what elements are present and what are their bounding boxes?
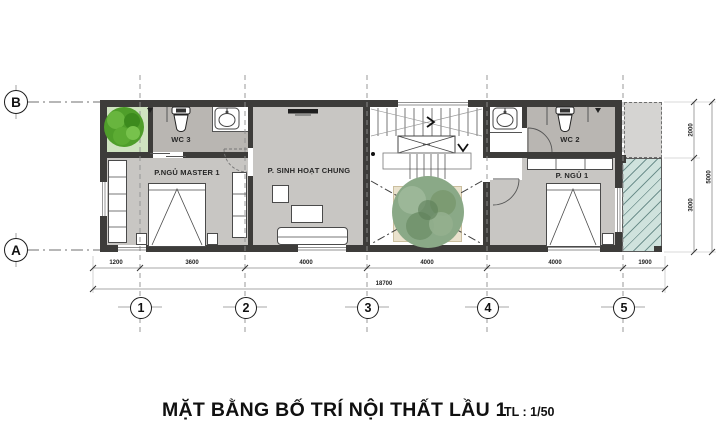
wall-corridor-wc2 [522, 107, 527, 128]
living-sofa [277, 227, 348, 245]
living-coffee-table [291, 205, 323, 223]
axis-bubble-A: A [4, 238, 28, 262]
room-label-master-bedroom: P.NGỦ MASTER 1 [137, 168, 237, 177]
opening-landing-corridor [483, 158, 490, 182]
wc2-basin-niche [490, 107, 522, 133]
wall-balcony-nub-bottom [654, 246, 662, 252]
wall-balcony-nub-top [615, 155, 626, 163]
living-side-table [272, 185, 289, 203]
axis-bubble-3: 3 [357, 297, 379, 319]
master-wardrobe-left [108, 160, 127, 243]
wall-master-living [248, 107, 253, 245]
wall-top [100, 100, 622, 107]
room-living-floor [253, 107, 363, 245]
dim-bottom-total: 18700 [376, 281, 393, 287]
door-opening-master [248, 148, 253, 176]
planter-box [104, 107, 148, 152]
room-label-living: P. SINH HOẠT CHUNG [254, 166, 364, 175]
stair-down-arrow-icon [458, 144, 468, 151]
master-wardrobe-right [232, 172, 247, 238]
axis-bubble-2: 2 [235, 297, 257, 319]
axis-bubble-B: B [4, 90, 28, 114]
bedroom1-bed [546, 183, 601, 247]
axis-bubble-1: 1 [130, 297, 152, 319]
window-left-wall [100, 182, 107, 216]
dim-bottom-5: 4000 [548, 260, 561, 266]
bedroom1-nightstand [602, 233, 614, 245]
roof-slab-area [624, 102, 662, 158]
master-bed [148, 183, 206, 247]
dim-bottom-4: 4000 [420, 260, 433, 266]
dim-bottom-6: 1900 [638, 260, 651, 266]
floor-plan-canvas: WC 3 P.NGỦ MASTER 1 P. SINH HOẠT CHUNG W… [0, 0, 727, 443]
wall-planter-side [148, 101, 153, 152]
grid-lines-horizontal [27, 102, 100, 250]
wall-left [100, 100, 107, 252]
drawing-scale: TL : 1/50 [504, 405, 554, 419]
master-nightstand-right [207, 233, 218, 245]
room-wc2-floor [527, 107, 615, 152]
window-top-wall [398, 100, 468, 107]
bedroom1-vestibule [490, 158, 522, 180]
window-bottom-living [298, 245, 346, 252]
room-label-wc2: WC 2 [540, 135, 600, 144]
window-right-wall [615, 188, 622, 232]
dim-right-total: 5000 [707, 170, 713, 183]
dimension-lines-bottom [93, 256, 665, 293]
axis-bubble-4: 4 [477, 297, 499, 319]
room-label-wc3: WC 3 [151, 135, 211, 144]
axis-bubble-5: 5 [613, 297, 635, 319]
void-planter-base [393, 186, 462, 242]
balcony-hatched-area [622, 158, 662, 252]
dim-right-2: 3000 [689, 198, 695, 211]
wall-living-stair [363, 107, 370, 245]
door-opening-wc3 [153, 152, 183, 158]
wc3-basin-niche [212, 107, 248, 132]
dim-bottom-3: 4000 [299, 260, 312, 266]
drawing-title: MẶT BẰNG BỐ TRÍ NỘI THẤT LẦU 1 [162, 399, 507, 422]
dim-bottom-2: 3600 [185, 260, 198, 266]
dim-right-1: 2000 [689, 123, 695, 136]
room-label-bedroom1: P. NGỦ 1 [522, 171, 622, 180]
window-bottom-master [118, 245, 146, 252]
master-nightstand-left [136, 233, 147, 245]
staircase [371, 108, 482, 179]
dimension-ticks-bottom [90, 265, 668, 292]
bedroom1-wardrobe [527, 158, 613, 170]
stair-up-arrow-icon [427, 117, 434, 127]
dim-bottom-1: 1200 [109, 260, 122, 266]
